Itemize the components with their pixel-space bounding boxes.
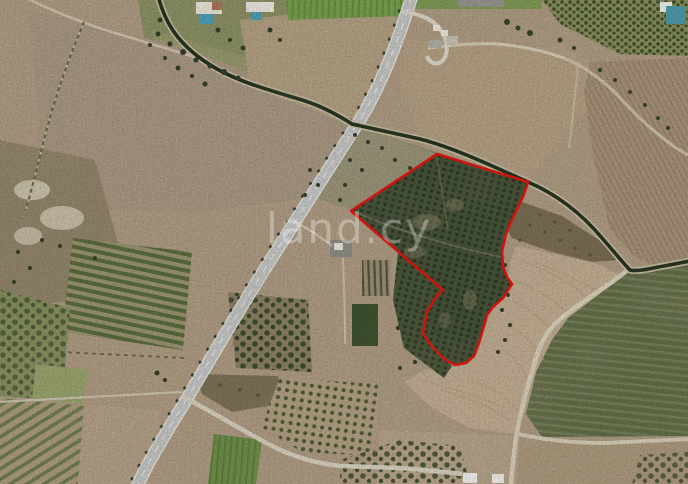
watermark: land.cy [266,204,432,253]
satellite-image: land.cy [0,0,688,484]
